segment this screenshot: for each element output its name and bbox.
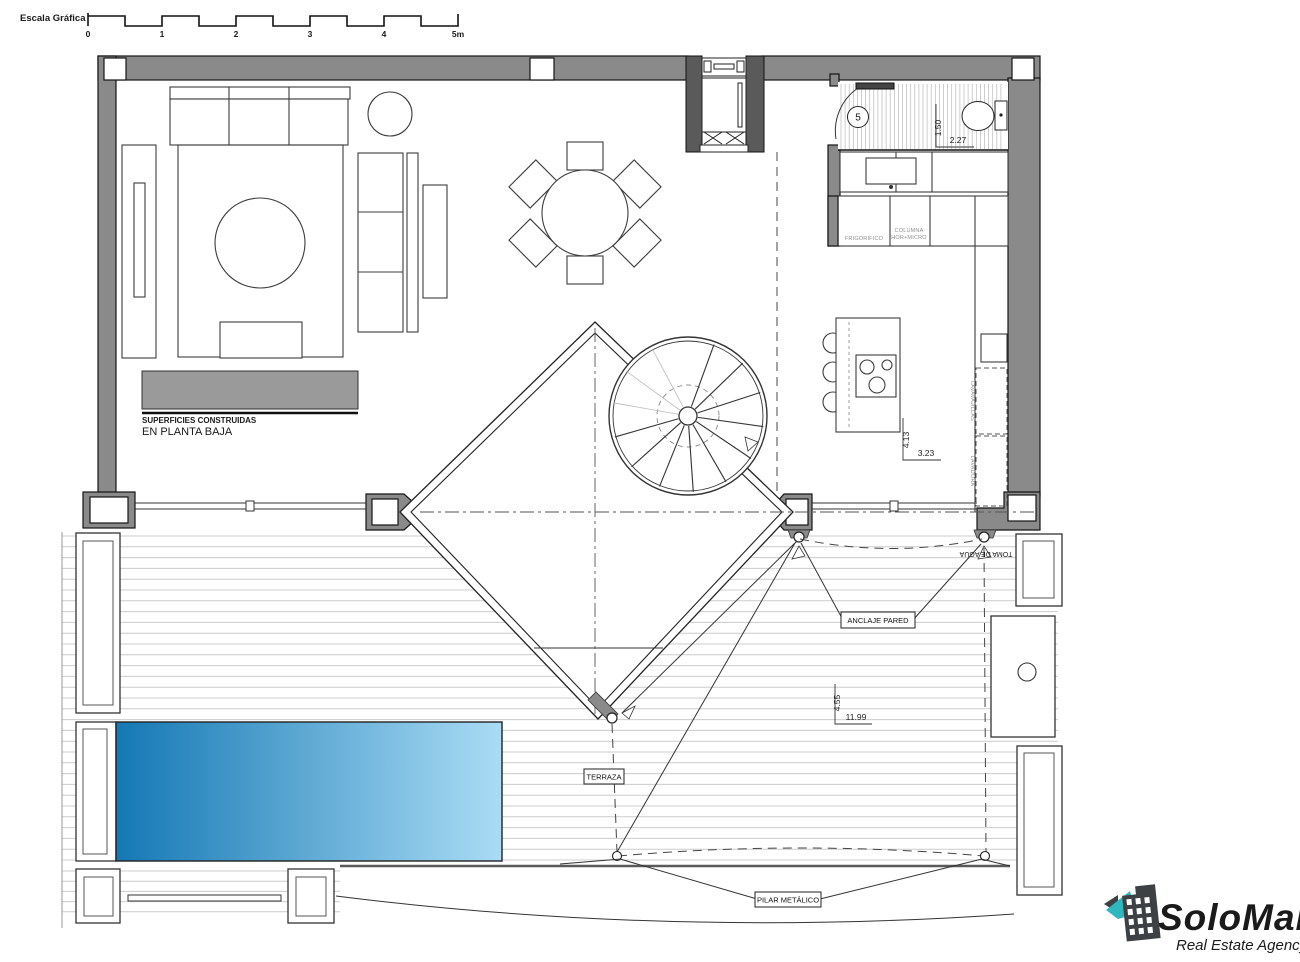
scale-bar-title: Escala Gráfica <box>20 13 86 24</box>
logo-window <box>1147 927 1153 933</box>
sail-cable <box>612 724 617 852</box>
top-wall-left <box>98 56 688 80</box>
dim-bath-width: 1.50 <box>933 119 943 136</box>
logo-window <box>1136 908 1142 914</box>
spiral-staircase <box>609 337 767 495</box>
pillar <box>530 58 554 80</box>
logo-window <box>1135 898 1141 904</box>
interior-wall-stub <box>830 74 839 86</box>
right-wall <box>1008 78 1040 496</box>
scale-tick: 4 <box>382 29 387 39</box>
ottoman <box>220 322 302 358</box>
logo-window <box>1126 899 1132 905</box>
logo-window <box>1146 917 1152 923</box>
dim-kitchen-width: 4.13 <box>901 431 911 448</box>
logo-window <box>1130 929 1136 935</box>
tv-unit <box>358 153 403 332</box>
left-wall <box>98 56 116 496</box>
dining-chair <box>567 142 603 170</box>
logo-window <box>1128 919 1134 925</box>
dining-chair <box>567 256 603 284</box>
logo-window <box>1145 907 1151 913</box>
living-room: SUPERFICIES CONSTRUIDAS EN PLANTA BAJA <box>122 87 447 438</box>
coffee-table <box>215 198 305 288</box>
room-number: 5 <box>855 113 861 124</box>
washing-machine <box>976 436 1007 506</box>
shelf-inner <box>134 183 145 297</box>
pillar-footing-inner <box>296 877 326 916</box>
scale-tick: 1 <box>160 29 165 39</box>
floor-plan-page: { "scale_bar": { "title": "Escala Gráfic… <box>0 0 1300 962</box>
cable-arrowhead <box>792 546 805 559</box>
toma-de-agua-label: TOMA DE AGUA <box>959 550 1012 557</box>
kitchen-sink <box>866 158 916 184</box>
cable-arrowhead <box>622 706 635 719</box>
faucet <box>889 185 893 189</box>
dim-bath-length: 2.27 <box>950 135 967 145</box>
logo-tagline: Real Estate Agency <box>1176 937 1300 954</box>
scale-bar-ticks: 0 1 2 3 4 5m <box>86 29 465 39</box>
anchor-point <box>607 713 617 723</box>
dim-terrace-length: 11.99 <box>846 712 867 722</box>
tv-screen <box>407 153 418 332</box>
logo-window <box>1127 909 1133 915</box>
dim-terrace-width: 4.55 <box>832 694 842 711</box>
elevator-shaft-wall <box>686 56 702 152</box>
anclaje-pared-label: ANCLAJE PARED <box>847 616 909 625</box>
fridge-label: FRIGORIFICO <box>845 236 884 242</box>
table-hole <box>1018 663 1036 681</box>
elevator-rail <box>738 83 742 127</box>
interior-wall <box>828 196 838 246</box>
door-leaf <box>856 83 894 89</box>
pillar <box>104 58 126 80</box>
kitchen: FRIGORIFICO COLUMNA HOR+MICRO LAVAVAJILL… <box>823 152 1008 512</box>
pillar <box>372 499 398 525</box>
cable-curve <box>336 896 1014 923</box>
column-oven-label: COLUMNA <box>895 228 924 234</box>
pillar <box>1012 58 1034 80</box>
toilet-bowl <box>962 102 994 131</box>
dishwasher <box>976 368 1007 434</box>
scale-bar: Escala Gráfica 0 1 2 3 4 5m <box>20 13 465 39</box>
elevator-door <box>702 132 746 144</box>
sofa-back <box>170 87 350 99</box>
dim-kitchen-length: 3.23 <box>918 448 935 458</box>
logo-wordmark: SoloMar <box>1158 897 1300 938</box>
planter-inner <box>1023 541 1054 598</box>
anchor-point <box>979 532 989 542</box>
planta-baja-label: EN PLANTA BAJA <box>142 426 233 438</box>
elevator <box>686 56 764 152</box>
logo-building-icon <box>1104 884 1161 941</box>
dining-area <box>509 142 661 284</box>
terraza-label: TERRAZA <box>586 773 621 782</box>
solomar-logo: SoloMar Real Estate Agency <box>1104 884 1300 954</box>
scale-tick: 5m <box>452 29 465 39</box>
column-oven-label2: HOR+MICRO <box>891 235 927 241</box>
floor-plan-drawing: Escala Gráfica 0 1 2 3 4 5m <box>0 0 1300 962</box>
washer-label: LAVADORA <box>969 456 975 487</box>
planter-inner <box>1024 753 1054 887</box>
dining-table <box>542 170 628 256</box>
scale-tick: 3 <box>308 29 313 39</box>
top-wall-right <box>762 56 1040 80</box>
logo-window <box>1138 928 1144 934</box>
dishwasher-label: LAVAVAJILLAS <box>969 381 975 421</box>
pilar-metalico-label: PILAR METÁLICO <box>757 896 819 905</box>
planter-inner <box>83 541 113 705</box>
scale-tick: 2 <box>234 29 239 39</box>
kitchen-counter <box>840 152 1008 192</box>
window-mullion <box>246 501 254 511</box>
stair-newel <box>679 407 697 425</box>
side-table <box>368 92 412 136</box>
logo-window <box>1137 918 1143 924</box>
console <box>423 185 447 298</box>
pillar-footing-inner <box>84 877 113 916</box>
pool-side-box-inner <box>83 729 107 854</box>
sofa <box>170 99 348 145</box>
window-mullion <box>890 501 898 511</box>
beam <box>128 895 281 901</box>
scale-bar-ruler <box>88 13 458 26</box>
pool <box>116 722 502 861</box>
superficies-label: SUPERFICIES CONSTRUIDAS <box>142 416 257 425</box>
pillar <box>90 497 128 523</box>
bathroom: 5 1.50 2.27 <box>835 82 1008 150</box>
logo-window <box>1144 897 1150 903</box>
sideboard <box>142 371 358 409</box>
sink-2 <box>981 334 1007 362</box>
anchor-point <box>794 532 804 542</box>
elevator-sill <box>700 145 748 152</box>
pillar <box>1008 495 1036 521</box>
scale-tick: 0 <box>86 29 91 39</box>
elevator-shaft-wall <box>746 56 764 152</box>
